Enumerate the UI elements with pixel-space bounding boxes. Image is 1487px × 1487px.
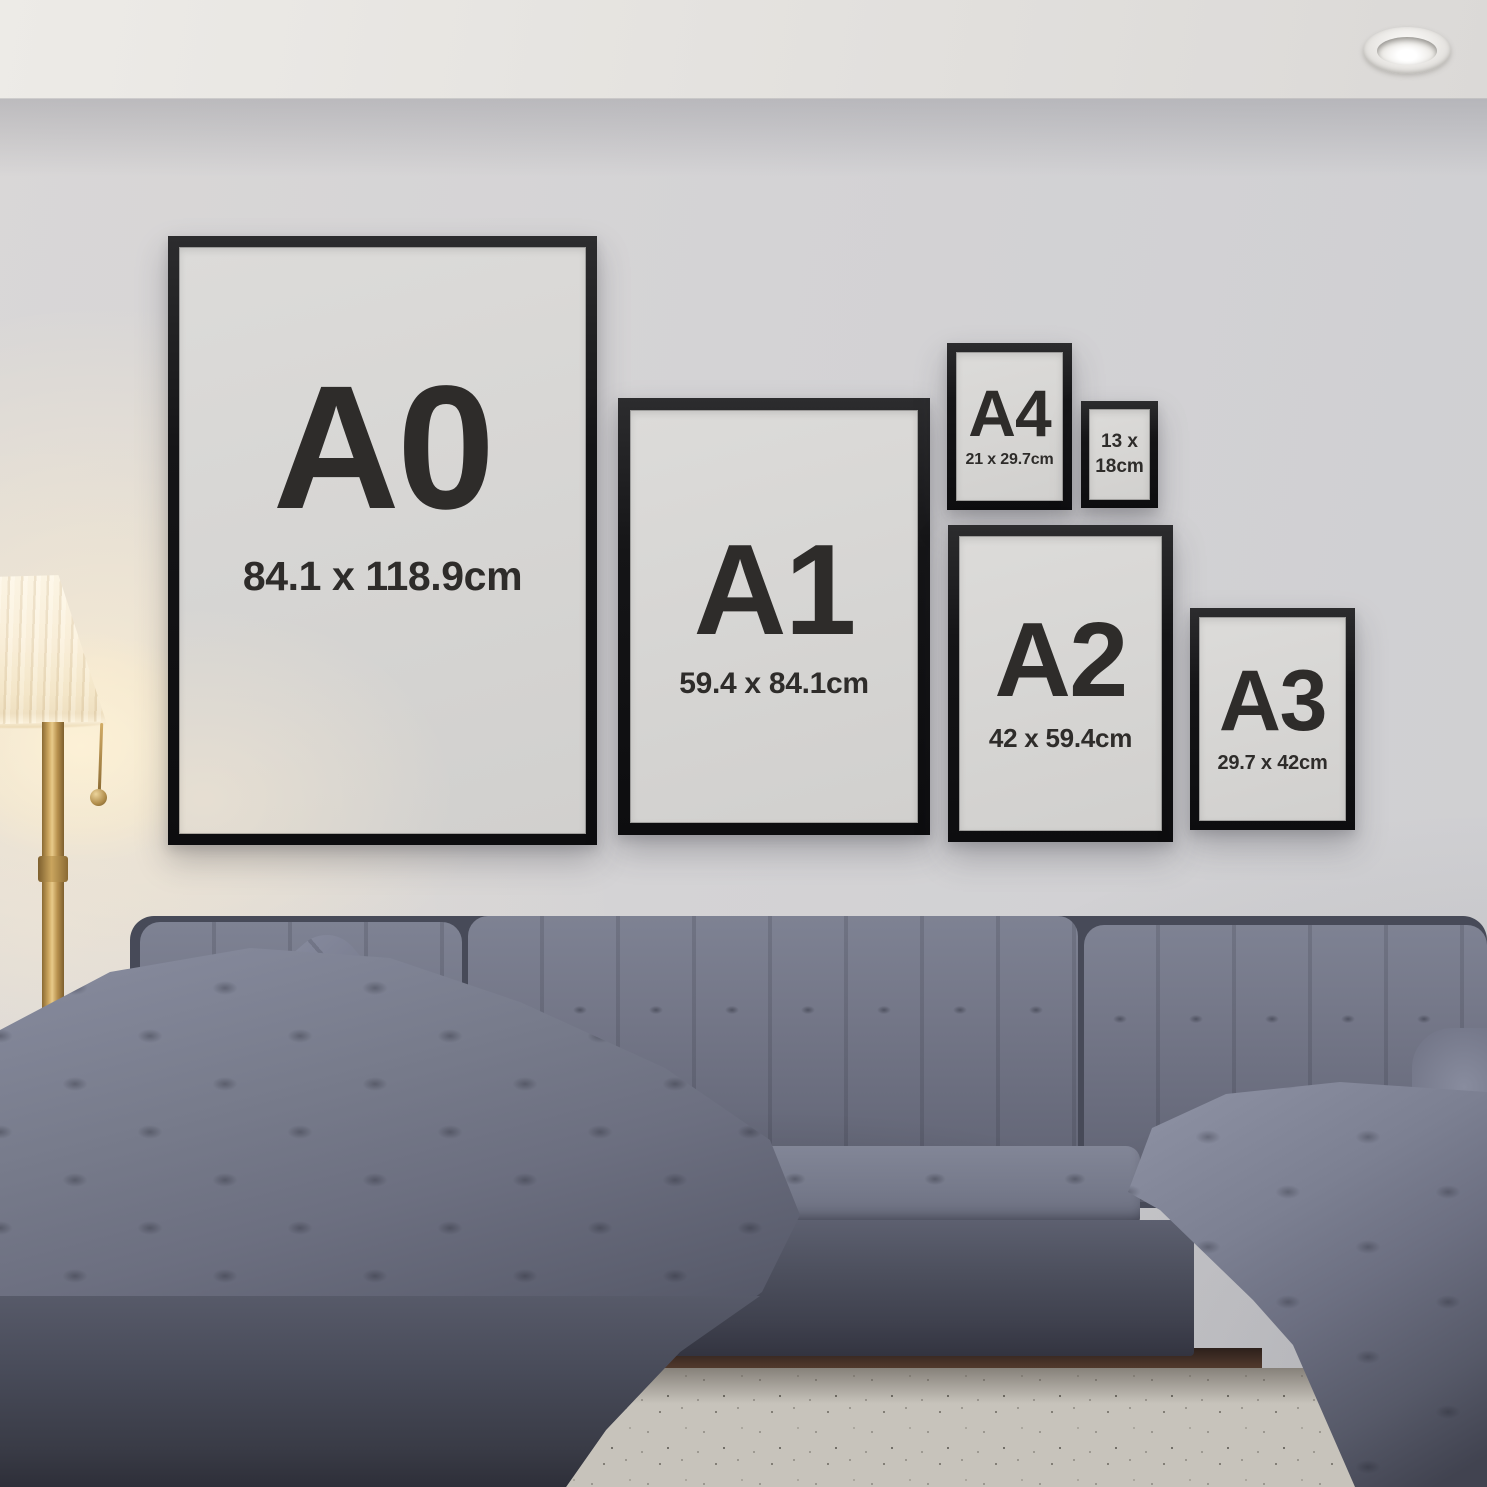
sofa-chaise-left-front bbox=[0, 1296, 770, 1487]
living-room-scene: A0 84.1 x 118.9cm A1 59.4 x 84.1cm A4 21… bbox=[0, 0, 1487, 1487]
sectional-sofa bbox=[0, 0, 1487, 1487]
